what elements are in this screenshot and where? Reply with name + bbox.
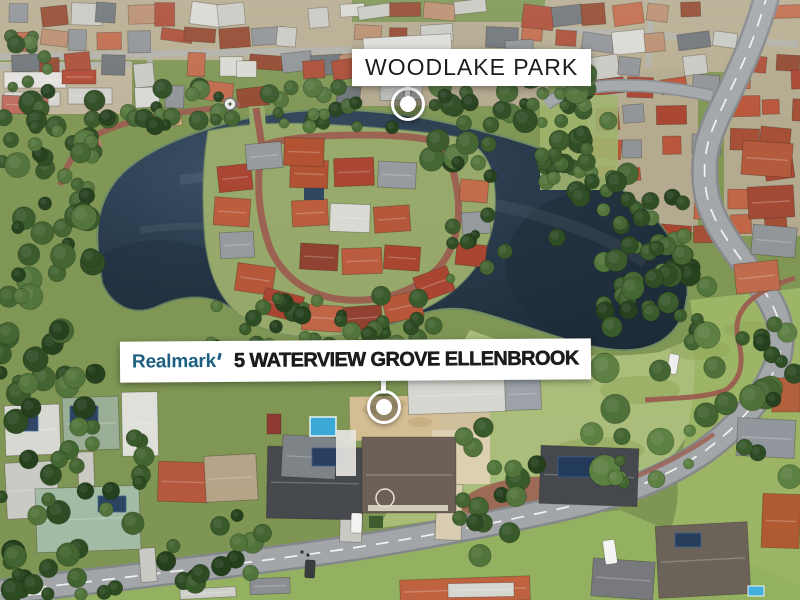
property-marker-ring: [367, 390, 401, 424]
property-label: Realmark 5 WATERVIEW GROVE ELLENBROOK: [120, 338, 591, 382]
aerial-photo: WOODLAKE PARK Realmark 5 WATERVIEW GROVE…: [0, 0, 800, 600]
property-address-text: 5 WATERVIEW GROVE ELLENBROOK: [234, 347, 579, 372]
realmark-tick-icon: [217, 352, 222, 360]
property-marker-dot: [376, 399, 392, 415]
park-label: WOODLAKE PARK: [352, 49, 591, 86]
park-marker-dot: [400, 96, 416, 112]
park-marker-ring: [391, 87, 425, 121]
park-label-text: WOODLAKE PARK: [365, 54, 578, 81]
realmark-logo: Realmark: [132, 350, 221, 373]
